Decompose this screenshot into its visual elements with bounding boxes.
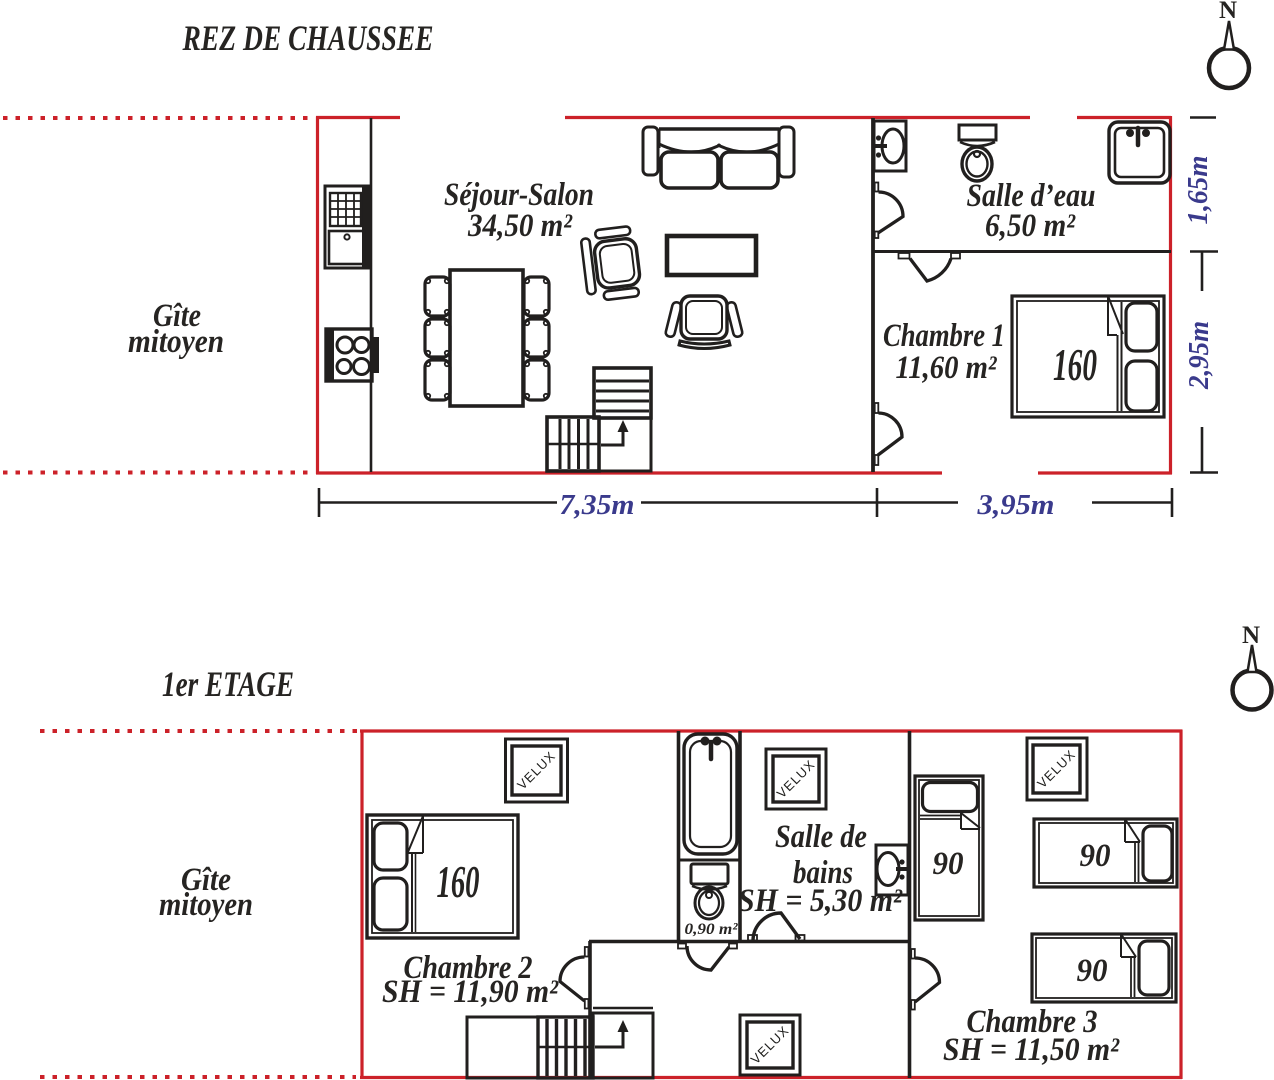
svg-text:Salle de: Salle de (775, 819, 867, 855)
svg-text:0,90 m²: 0,90 m² (685, 921, 739, 938)
svg-text:90: 90 (1080, 838, 1111, 874)
svg-text:1,65m: 1,65m (1183, 156, 1214, 225)
svg-text:VELUX: VELUX (774, 757, 818, 801)
svg-text:6,50 m²: 6,50 m² (985, 208, 1076, 244)
svg-text:REZ DE CHAUSSEE: REZ DE CHAUSSEE (182, 18, 434, 58)
svg-text:160: 160 (437, 856, 480, 907)
svg-text:Chambre 1: Chambre 1 (883, 318, 1005, 354)
svg-text:34,50 m²: 34,50 m² (467, 208, 573, 244)
svg-text:11,60 m²: 11,60 m² (896, 350, 998, 386)
svg-text:1er ETAGE: 1er ETAGE (162, 664, 294, 704)
svg-text:3,95m: 3,95m (976, 490, 1054, 521)
svg-text:mitoyen: mitoyen (159, 887, 253, 923)
svg-text:SH = 5,30 m²: SH = 5,30 m² (738, 883, 903, 919)
svg-text:7,35m: 7,35m (560, 490, 635, 521)
svg-text:SH = 11,90 m²: SH = 11,90 m² (382, 974, 559, 1010)
svg-text:N: N (1219, 0, 1237, 24)
svg-text:160: 160 (1053, 339, 1097, 390)
svg-text:mitoyen: mitoyen (128, 324, 224, 360)
svg-text:90: 90 (933, 846, 964, 882)
svg-text:2,95m: 2,95m (1184, 321, 1215, 390)
svg-text:VELUX: VELUX (514, 748, 558, 792)
svg-text:VELUX: VELUX (748, 1023, 792, 1067)
svg-text:VELUX: VELUX (1034, 747, 1078, 791)
svg-text:90: 90 (1077, 953, 1108, 989)
svg-text:SH = 11,50 m²: SH = 11,50 m² (943, 1032, 1120, 1068)
